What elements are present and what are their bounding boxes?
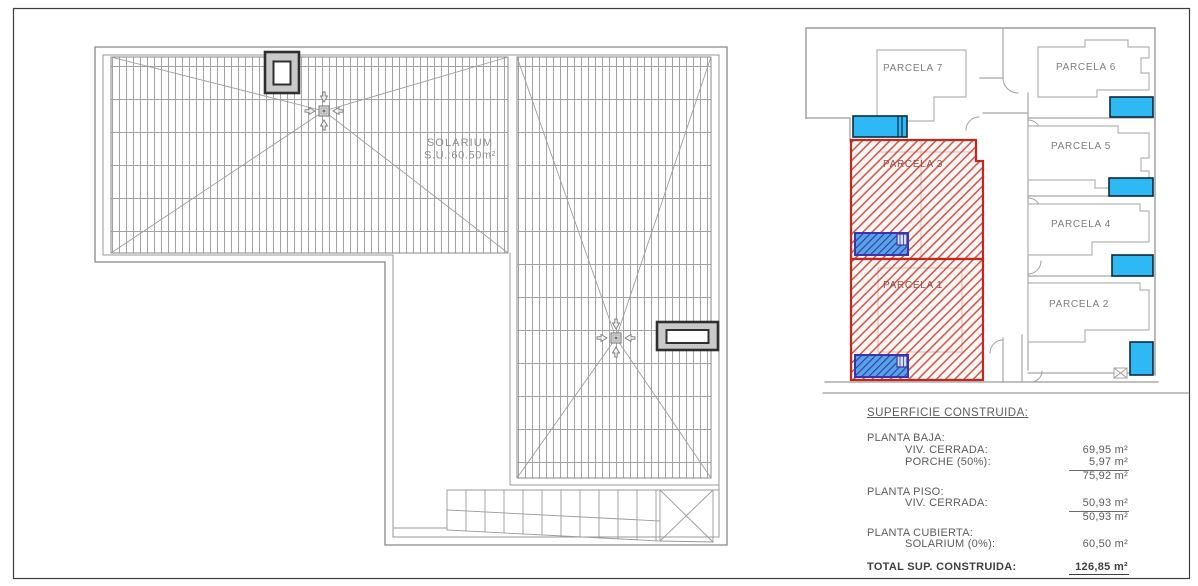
row-label: PORCHE (50%): bbox=[867, 457, 991, 471]
site-boundary-step bbox=[806, 118, 850, 142]
parcela-5-pool bbox=[1109, 178, 1153, 196]
parcela-4-pool bbox=[1112, 255, 1153, 276]
total-value: 126,85 m² bbox=[1069, 562, 1129, 576]
parcela-2-pool bbox=[1130, 342, 1153, 375]
subtotal-row: 75,92 m² bbox=[867, 471, 1129, 484]
parcela-1-label: PARCELA 1 bbox=[883, 280, 943, 291]
roof-plan: SOLARIUM S.U.:60.50m² bbox=[95, 47, 727, 545]
parcela-7-label: PARCELA 7 bbox=[883, 63, 943, 74]
total-row: TOTAL SUP. CONSTRUIDA: 126,85 m² bbox=[867, 562, 1129, 576]
parcela-3-label: PARCELA 3 bbox=[883, 159, 943, 170]
row-value: 50,93 m² bbox=[1069, 498, 1129, 512]
summary-row: PORCHE (50%): 5,97 m² bbox=[867, 457, 1129, 471]
parcela-1-pool-hatched bbox=[855, 355, 908, 377]
parcela-2-house bbox=[1028, 283, 1149, 342]
solarium-area-label: S.U.:60.50m² bbox=[424, 150, 496, 162]
chimney-icon bbox=[265, 52, 299, 93]
row-label: SOLARIUM (0%): bbox=[867, 539, 995, 552]
section-planta-baja: PLANTA BAJA: bbox=[867, 433, 1129, 445]
row-value: 60,50 m² bbox=[1069, 539, 1129, 552]
solarium-deck-right bbox=[517, 57, 711, 478]
parcela-5-label: PARCELA 5 bbox=[1051, 141, 1111, 152]
site-plan: PARCELA 7 PARCELA 6 PARCELA 5 PARCELA 4 … bbox=[806, 28, 1188, 393]
summary-row: SOLARIUM (0%): 60,50 m² bbox=[867, 539, 1129, 552]
parcela-2-label: PARCELA 2 bbox=[1049, 299, 1109, 310]
built-area-summary: SUPERFICIE CONSTRUIDA: PLANTA BAJA: VIV.… bbox=[867, 407, 1129, 575]
parcela-3-pool-hatched bbox=[855, 233, 908, 255]
parcela-4-label: PARCELA 4 bbox=[1051, 219, 1111, 230]
vent-chimney-icon bbox=[657, 322, 718, 350]
summary-row: VIV. CERRADA: 50,93 m² bbox=[867, 498, 1129, 512]
solarium-label: SOLARIUM bbox=[427, 137, 493, 149]
utility-box-icon bbox=[1114, 368, 1127, 378]
parcela-6-label: PARCELA 6 bbox=[1056, 62, 1116, 73]
subtotal-value: 75,92 m² bbox=[1069, 471, 1129, 484]
parcela-7-pool bbox=[853, 116, 907, 137]
summary-title: SUPERFICIE CONSTRUIDA: bbox=[867, 407, 1129, 420]
total-label: TOTAL SUP. CONSTRUIDA: bbox=[867, 562, 1016, 576]
parcela-7-house bbox=[877, 50, 966, 121]
drawing-sheet: SOLARIUM S.U.:60.50m² bbox=[0, 0, 1198, 586]
row-value: 5,97 m² bbox=[1069, 457, 1129, 471]
subtotal-value: 50,93 m² bbox=[1069, 512, 1129, 525]
subtotal-row: 50,93 m² bbox=[867, 512, 1129, 525]
parcela-6-pool bbox=[1110, 97, 1153, 117]
row-label: VIV. CERRADA: bbox=[867, 498, 988, 512]
